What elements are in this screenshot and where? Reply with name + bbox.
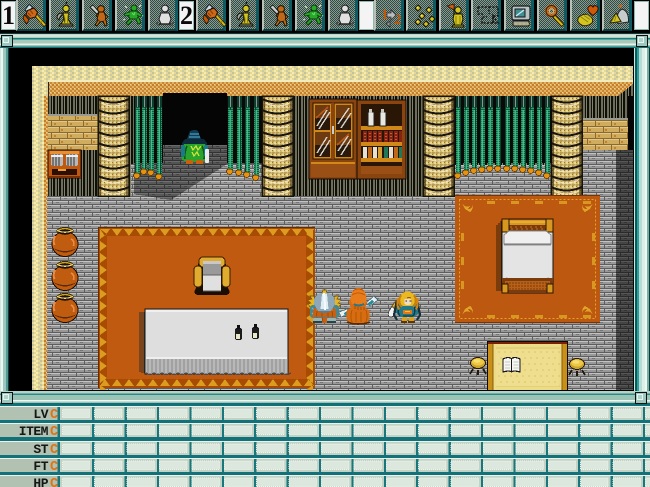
svg-text:HP: HP	[33, 476, 48, 487]
svg-text:ST: ST	[33, 442, 48, 457]
svg-text:C: C	[50, 443, 58, 458]
svg-text:C: C	[50, 425, 58, 440]
svg-text:C: C	[50, 460, 58, 475]
svg-text:C: C	[50, 477, 58, 487]
svg-text:C: C	[50, 408, 58, 423]
svg-text:ITEM: ITEM	[19, 424, 49, 439]
svg-text:LV: LV	[33, 407, 48, 422]
svg-text:FT: FT	[33, 459, 48, 474]
